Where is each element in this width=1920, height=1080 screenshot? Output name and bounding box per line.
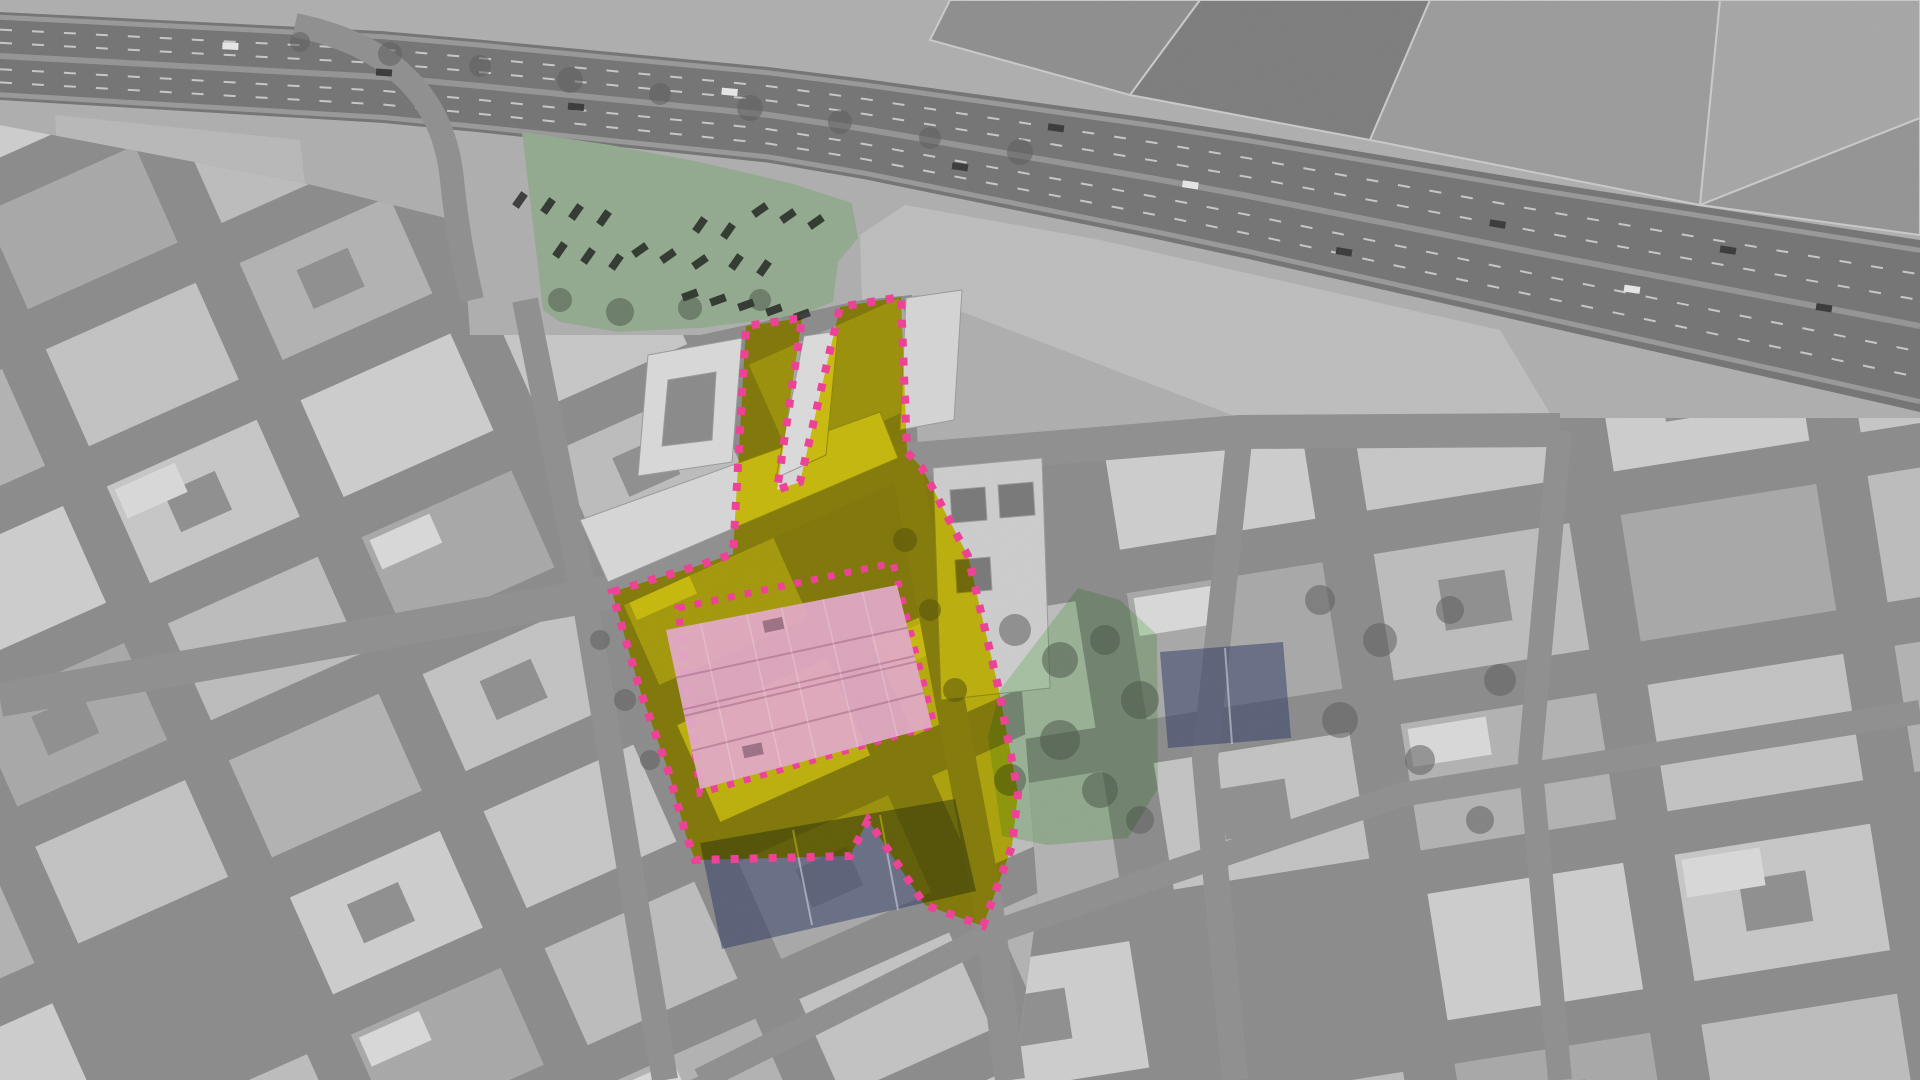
screenshot-root	[0, 0, 1920, 1080]
aerial-map	[0, 0, 1920, 1080]
photo-grain-texture	[0, 0, 1920, 1080]
